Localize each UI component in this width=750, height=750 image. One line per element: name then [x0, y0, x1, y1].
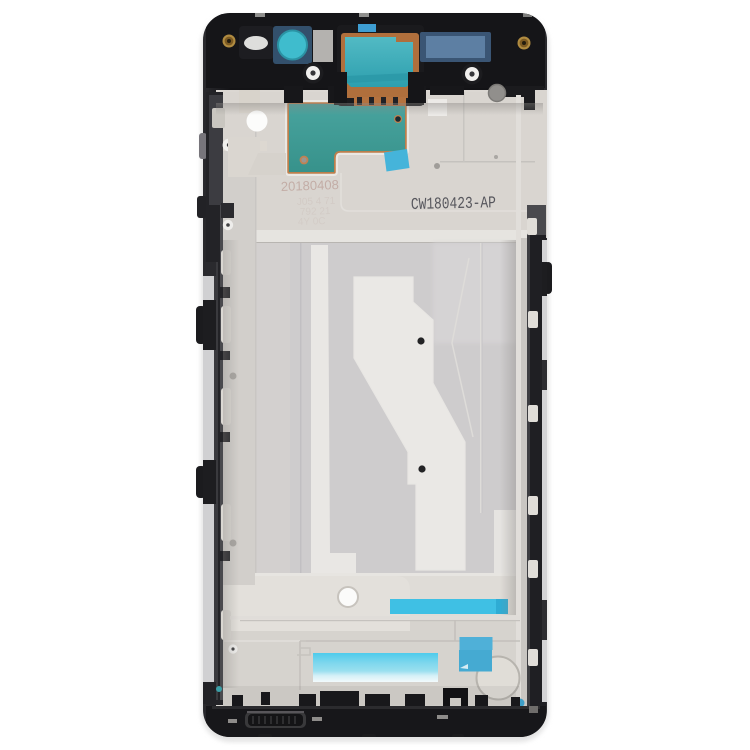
svg-text:4Y 0C: 4Y 0C — [298, 216, 326, 228]
svg-text:20180408: 20180408 — [281, 177, 339, 194]
svg-text:CW180423-AP: CW180423-AP — [411, 193, 496, 214]
